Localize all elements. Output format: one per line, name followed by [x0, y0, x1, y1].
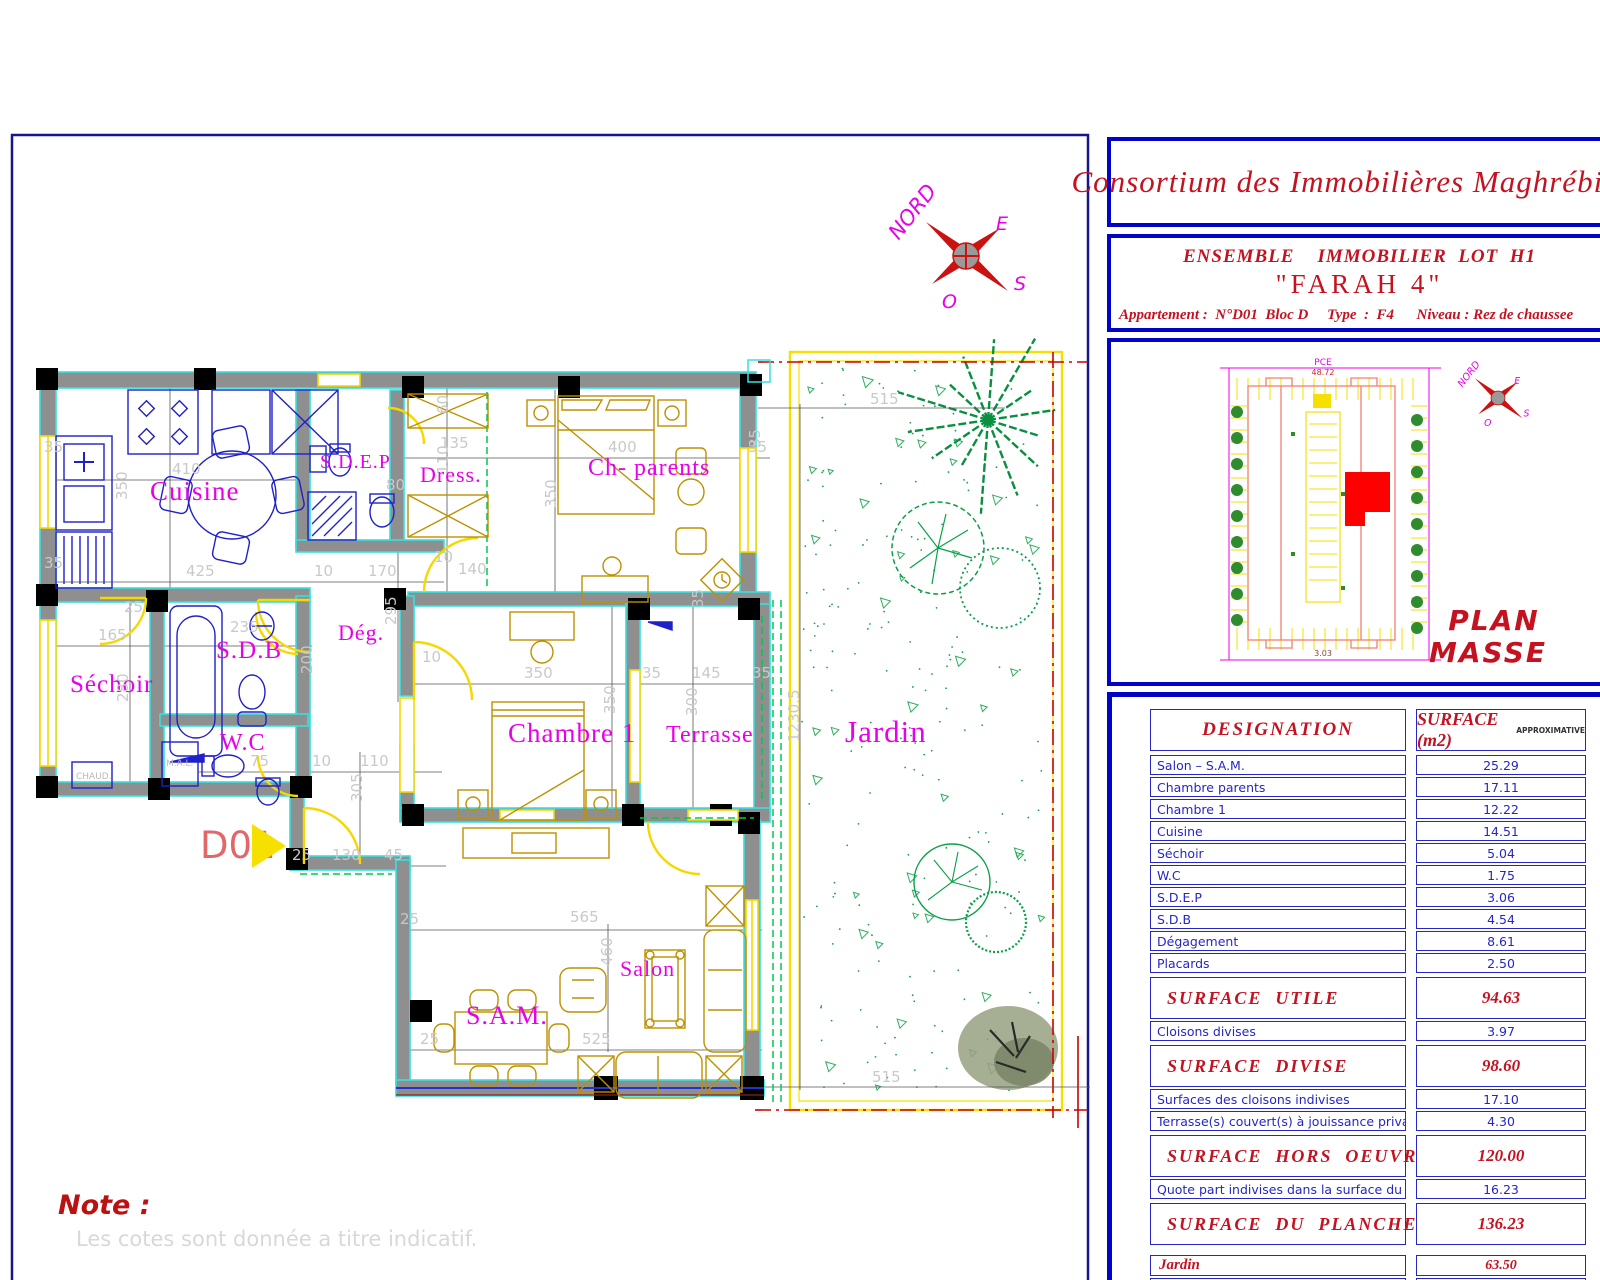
dimension-label: 460: [598, 937, 616, 966]
row-designation: SURFACE DU PLANCHER: [1150, 1203, 1406, 1245]
tree-icon: [1411, 466, 1423, 478]
dimension-label: 25: [420, 1030, 439, 1048]
stove-icon: [139, 401, 188, 445]
dimension-label: 165: [98, 626, 127, 644]
tree-icon: [1411, 414, 1423, 426]
row-surface-value: 3.97: [1416, 1021, 1586, 1041]
dimension-label: 305: [348, 773, 366, 802]
dimension-label: 140: [458, 560, 487, 578]
dimension-label: 170: [368, 562, 397, 580]
site-street-label: PCE: [1314, 358, 1332, 368]
dimension-label: 350: [542, 479, 560, 508]
tree-icon: [1231, 510, 1243, 522]
plan-masse-block: PCE 48.72 3.03 NORD E O S PLAN MASSE: [1107, 338, 1600, 686]
row-designation: SURFACE UTILE: [1150, 977, 1406, 1019]
apartment-line: Appartement : N°D01 Bloc D Type : F4 Niv…: [1111, 307, 1600, 324]
row-designation: Chambre parents: [1150, 777, 1406, 797]
table-row: S.D.B4.54: [1150, 909, 1600, 929]
room-label: S.A.M.: [466, 1001, 548, 1030]
row-surface-value: 94.63: [1416, 977, 1586, 1019]
row-designation: Séchoir: [1150, 843, 1406, 863]
row-designation: SURFACE DIVISE: [1150, 1045, 1406, 1087]
room-label: Terrasse: [666, 722, 754, 748]
tree-icon: [1411, 622, 1423, 634]
dimension-label: 400: [608, 438, 637, 456]
compass-rose-icon: NORD E O S: [884, 179, 1026, 313]
table-row: S.D.E.P3.06: [1150, 887, 1600, 907]
company-title-block: Consortium des Immobilières Maghrébines: [1107, 137, 1600, 227]
site-trees: [1231, 406, 1423, 634]
dimension-label: 25: [124, 598, 143, 616]
floor-plan-svg: M.A.L. CHAUD.: [0, 0, 1100, 1280]
drawing-frame: [12, 135, 1088, 1280]
dimension-label: 10: [434, 548, 453, 566]
room-label: S.D.B: [216, 637, 282, 664]
dimension-label: 515: [872, 1068, 901, 1086]
table-row: Chambre parents17.11: [1150, 777, 1600, 797]
row-surface-value: 136.23: [1416, 1203, 1586, 1245]
row-designation: Salon – S.A.M.: [1150, 755, 1406, 775]
dimension-label: 10: [312, 752, 331, 770]
project-line: ENSEMBLE IMMOBILIER LOT H1: [1111, 246, 1600, 268]
dimension-label: 10: [422, 648, 441, 666]
row-surface-value: 63.50: [1416, 1255, 1586, 1276]
tree-icon: [1231, 432, 1243, 444]
dimension-label: 35: [642, 664, 661, 682]
table-row: Surfaces des cloisons indivises17.10: [1150, 1089, 1600, 1109]
row-surface-value: 16.23: [1416, 1179, 1586, 1199]
row-surface-value: 4.54: [1416, 909, 1586, 929]
dimension-label: 110: [434, 445, 452, 474]
table-rows: Salon – S.A.M.25.29Chambre parents17.11C…: [1150, 755, 1600, 1280]
table-row: Cloisons divises3.97: [1150, 1021, 1600, 1041]
row-surface-value: 12.22: [1416, 799, 1586, 819]
dimension-label: 110: [360, 752, 389, 770]
row-designation: Placards: [1150, 953, 1406, 973]
boiler-label: CHAUD.: [76, 772, 112, 782]
surface-header-suffix: APPROXIMATIVE: [1516, 726, 1585, 735]
row-designation: S.D.E.P: [1150, 887, 1406, 907]
compass-east-label: E: [996, 213, 1008, 235]
table-row: SURFACE DU PLANCHER136.23: [1150, 1203, 1600, 1245]
project-name: "FARAH 4": [1111, 269, 1600, 300]
table-row: Jardin63.50: [1150, 1255, 1600, 1276]
table-row: Terrasse(s) couvert(s) à jouissance priv…: [1150, 1111, 1600, 1131]
dimension-label: 295: [382, 596, 400, 625]
row-surface-value: 17.11: [1416, 777, 1586, 797]
room-label: Cuisine: [150, 476, 240, 506]
room-label: S.D.E.P: [320, 451, 391, 473]
tree-icon: [1411, 596, 1423, 608]
table-row: SURFACE UTILE94.63: [1150, 977, 1600, 1019]
dimension-label: 565: [570, 908, 599, 926]
site-entry-marker: [1313, 394, 1331, 408]
table-row: W.C1.75: [1150, 865, 1600, 885]
table-row: Quote part indivises dans la surface du …: [1150, 1179, 1600, 1199]
tree-icon: [1231, 484, 1243, 496]
tree-icon: [1411, 570, 1423, 582]
row-surface-value: 2.50: [1416, 953, 1586, 973]
dimension-label: 25: [400, 910, 419, 928]
room-label: Séchoir: [70, 671, 153, 698]
dimension-label: 300: [683, 687, 701, 716]
bush-icon: [958, 1006, 1058, 1090]
tree-icon: [1231, 562, 1243, 574]
compass-south-label: S: [1524, 409, 1530, 420]
row-surface-value: 25.29: [1416, 755, 1586, 775]
site-street-value: 48.72: [1312, 368, 1335, 377]
compass-west-label: O: [942, 291, 957, 313]
building-outline: [1248, 378, 1395, 648]
room-label: Salon: [620, 956, 675, 981]
tree-icon: [1411, 544, 1423, 556]
compass-west-label: O: [1484, 418, 1491, 429]
tree-icon: [1231, 588, 1243, 600]
row-designation: Quote part indivises dans la surface du …: [1150, 1179, 1406, 1199]
tree-icon: [1411, 492, 1423, 504]
dimension-label: 350: [113, 471, 131, 500]
dimension-label: 75: [250, 752, 269, 770]
dimension-label: 10: [314, 562, 333, 580]
row-designation: Chambre 1: [1150, 799, 1406, 819]
row-designation: SURFACE HORS OEUVRE: [1150, 1135, 1406, 1177]
dimension-label: 130: [332, 846, 361, 864]
table-header: DESIGNATION SURFACE (m2) APPROXIMATIVE: [1150, 709, 1600, 751]
table-row: Séchoir5.04: [1150, 843, 1600, 863]
dimension-label: 35: [44, 438, 63, 456]
plan-masse-label-1: PLAN: [1448, 604, 1539, 637]
table-row: SURFACE DIVISE98.60: [1150, 1045, 1600, 1087]
project-title-block: ENSEMBLE IMMOBILIER LOT H1 "FARAH 4" App…: [1107, 234, 1600, 332]
row-surface-value: 120.00: [1416, 1135, 1586, 1177]
washing-machine-label: M.A.L.: [166, 759, 193, 769]
highlighted-unit: [1345, 472, 1390, 526]
surface-header: SURFACE (m2) APPROXIMATIVE: [1416, 709, 1586, 751]
dimension-label: 410: [172, 460, 201, 478]
site-bottom-value: 3.03: [1314, 649, 1332, 658]
row-designation: W.C: [1150, 865, 1406, 885]
dimension-label: 350: [601, 685, 619, 714]
tree-icon: [1231, 536, 1243, 548]
table-row: Salon – S.A.M.25.29: [1150, 755, 1600, 775]
dimension-label: 25: [292, 846, 311, 864]
compass-east-label: E: [1514, 376, 1520, 387]
tree-icon: [1411, 440, 1423, 452]
row-surface-value: 4.30: [1416, 1111, 1586, 1131]
dimension-label: 1230.5: [785, 690, 803, 743]
table-row: SURFACE HORS OEUVRE120.00: [1150, 1135, 1600, 1177]
room-label: Ch- parents: [588, 455, 710, 481]
compass-south-label: S: [1014, 273, 1026, 295]
dimension-label: 525: [582, 1030, 611, 1048]
row-surface-value: 17.10: [1416, 1089, 1586, 1109]
dimension-label: 35: [746, 429, 764, 448]
dimension-label: 235: [230, 618, 259, 636]
row-designation: Cuisine: [1150, 821, 1406, 841]
compass-north-label: NORD: [884, 179, 942, 243]
row-surface-value: 8.61: [1416, 931, 1586, 951]
compass-north-label: NORD: [1456, 359, 1483, 389]
row-surface-value: 3.06: [1416, 887, 1586, 907]
dimension-label: 425: [186, 562, 215, 580]
dimension-label: 350: [524, 664, 553, 682]
tree-icon: [1231, 458, 1243, 470]
palm-tree-icon: [898, 339, 1055, 514]
dimension-label: 35: [689, 589, 707, 608]
row-designation: Surfaces des cloisons indivises: [1150, 1089, 1406, 1109]
row-designation: S.D.B: [1150, 909, 1406, 929]
dimension-label: 145: [692, 664, 721, 682]
tree-icon: [1231, 406, 1243, 418]
row-designation: Dégagement: [1150, 931, 1406, 951]
site-plan-svg: PCE 48.72 3.03 NORD E O S PLAN MASSE: [1111, 342, 1600, 682]
table-row: Dégagement8.61: [1150, 931, 1600, 951]
note-title: Note :: [58, 1190, 151, 1221]
dimension-label: 60: [434, 395, 452, 414]
table-row: Cuisine14.51: [1150, 821, 1600, 841]
row-surface-value: 5.04: [1416, 843, 1586, 863]
row-surface-value: 14.51: [1416, 821, 1586, 841]
designation-header: DESIGNATION: [1150, 709, 1406, 751]
row-surface-value: 1.75: [1416, 865, 1586, 885]
room-label: Jardin: [845, 714, 927, 749]
plan-masse-label-2: MASSE: [1429, 636, 1547, 669]
room-label: Chambre 1: [508, 718, 636, 748]
row-designation: Jardin: [1150, 1255, 1406, 1276]
dimension-label: 35: [44, 554, 63, 572]
row-designation: Cloisons divises: [1150, 1021, 1406, 1041]
drawing-sheet: M.A.L. CHAUD.: [0, 0, 1600, 1280]
dimension-label: 35: [752, 664, 771, 682]
company-name: Consortium des Immobilières Maghrébines: [1072, 164, 1600, 200]
dimension-label: 280: [114, 673, 132, 702]
row-surface-value: 98.60: [1416, 1045, 1586, 1087]
note-text: Les cotes sont donnée a titre indicatif.: [76, 1227, 477, 1251]
table-row: Chambre 112.22: [1150, 799, 1600, 819]
dimension-label: 80: [386, 476, 405, 494]
dimension-label: 45: [384, 846, 403, 864]
tree-icon: [1411, 518, 1423, 530]
compass-rose-small-icon: NORD E O S: [1456, 359, 1530, 429]
dimension-label: 200: [298, 645, 316, 674]
dimension-label: 515: [870, 390, 899, 408]
surface-table-block: DESIGNATION SURFACE (m2) APPROXIMATIVE S…: [1107, 692, 1600, 1280]
table-row: Placards2.50: [1150, 953, 1600, 973]
room-label: Dég.: [338, 620, 384, 645]
row-designation: Terrasse(s) couvert(s) à jouissance priv…: [1150, 1111, 1406, 1131]
tree-icon: [1231, 614, 1243, 626]
